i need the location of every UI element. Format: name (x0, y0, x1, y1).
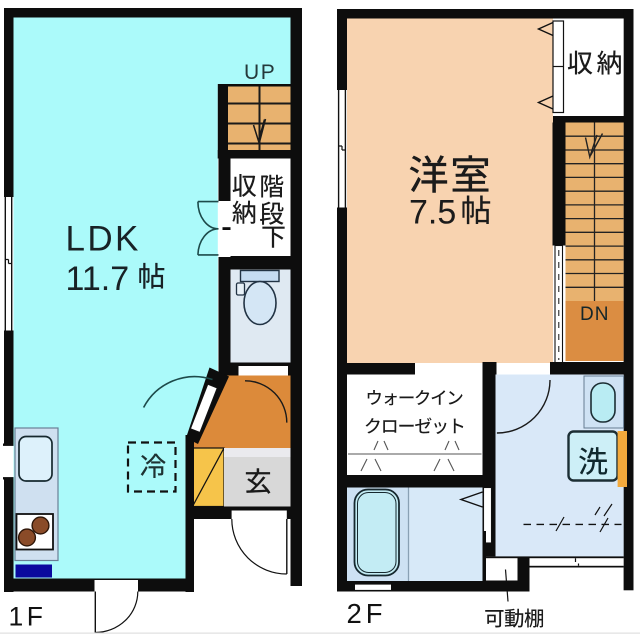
svg-text:7.5: 7.5 (409, 194, 456, 232)
svg-text:DN: DN (580, 304, 609, 325)
svg-text:UP: UP (244, 61, 276, 84)
svg-text:11.7: 11.7 (66, 260, 130, 298)
svg-text:1F: 1F (9, 602, 47, 632)
svg-text:LDK: LDK (66, 220, 141, 259)
svg-text:2F: 2F (347, 598, 387, 629)
